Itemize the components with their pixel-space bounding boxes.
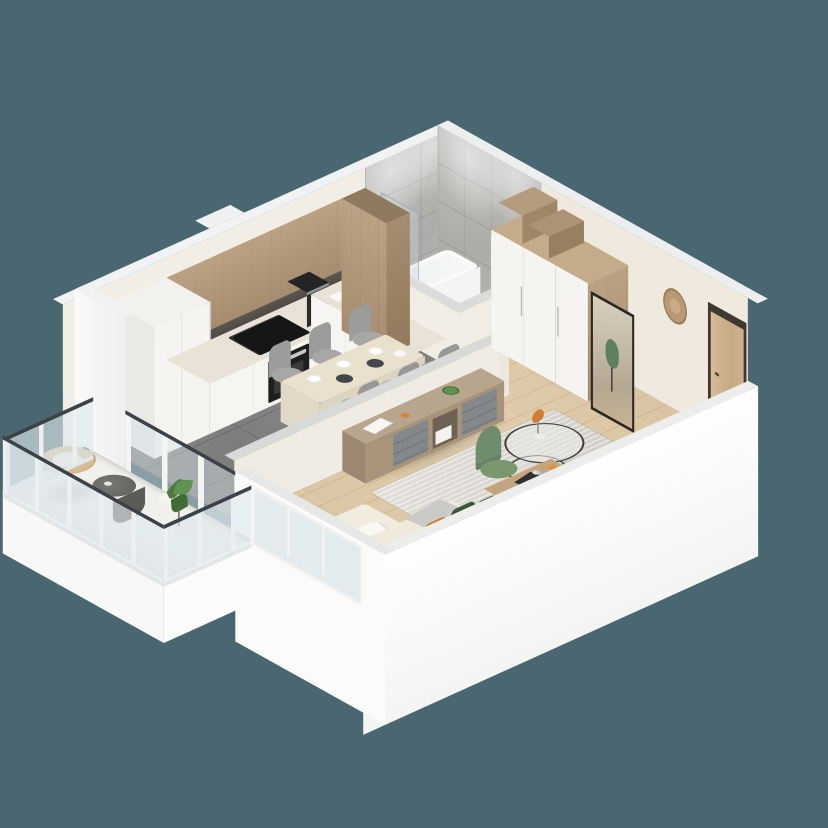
book-stack — [362, 418, 391, 434]
sideboard-open-shelf — [433, 408, 458, 449]
apartment-scene — [95, 283, 738, 604]
sideboard-plant — [439, 384, 463, 396]
window-mullion — [287, 507, 290, 557]
tall-cabinet-seam — [181, 314, 182, 446]
plate — [333, 359, 354, 370]
window-mullion — [322, 527, 325, 577]
plate — [365, 346, 386, 357]
floor-mirror — [591, 291, 634, 433]
plate — [304, 373, 325, 384]
tall-wood-cabinet-front — [386, 213, 409, 356]
shelf-box — [436, 425, 452, 445]
table-decor — [102, 481, 113, 487]
placemat — [332, 372, 356, 384]
placemat — [363, 357, 387, 369]
plate — [391, 349, 410, 358]
wardrobe-handle — [521, 286, 522, 317]
mirror-reflection-chair — [606, 336, 619, 371]
wall-clock — [663, 283, 687, 330]
orange-bowl — [399, 412, 412, 418]
mirror-reflection-chair-leg — [611, 367, 612, 392]
floor-plan-render — [0, 0, 828, 828]
wardrobe-handle — [557, 306, 558, 337]
